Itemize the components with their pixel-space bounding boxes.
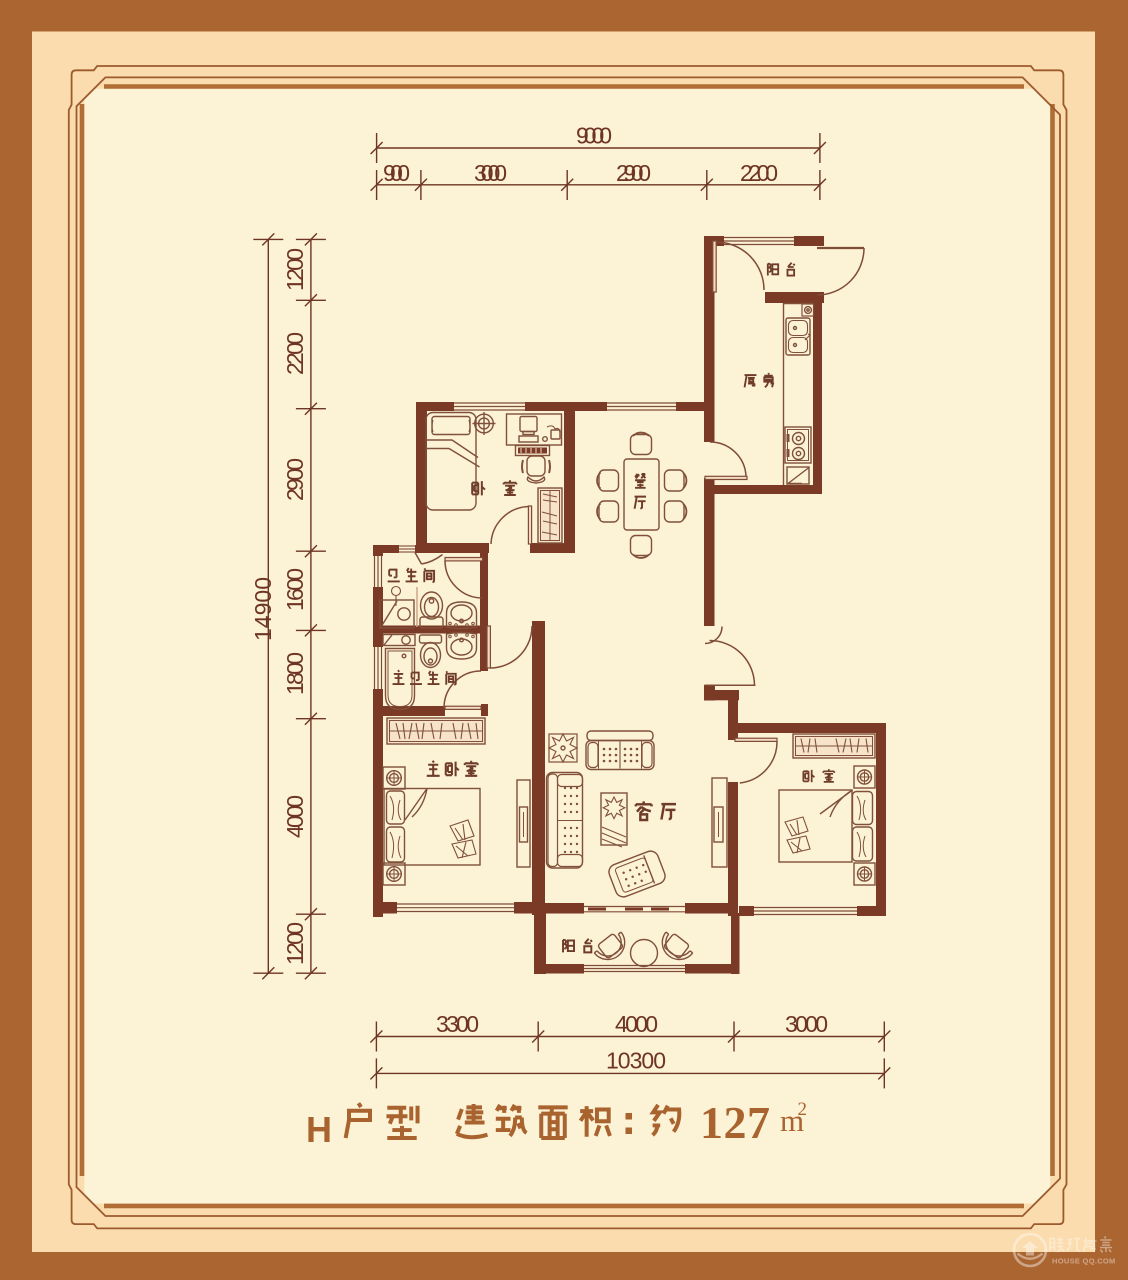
svg-text:HOUSE QQ.COM: HOUSE QQ.COM bbox=[1052, 1257, 1116, 1266]
svg-text:2900: 2900 bbox=[282, 458, 308, 501]
svg-text:10300: 10300 bbox=[606, 1048, 666, 1074]
svg-text:4000: 4000 bbox=[615, 1011, 658, 1037]
svg-text:900: 900 bbox=[383, 160, 410, 186]
svg-text:2900: 2900 bbox=[616, 160, 651, 186]
svg-text:9000: 9000 bbox=[576, 123, 612, 149]
svg-text:1600: 1600 bbox=[282, 568, 308, 611]
svg-text:1200: 1200 bbox=[282, 248, 308, 291]
svg-text:H: H bbox=[306, 1109, 332, 1150]
svg-text:2200: 2200 bbox=[740, 160, 778, 186]
svg-text:1200: 1200 bbox=[282, 922, 308, 965]
svg-text:14900: 14900 bbox=[250, 577, 276, 641]
svg-text:127: 127 bbox=[700, 1097, 770, 1148]
svg-text:3000: 3000 bbox=[474, 160, 507, 186]
svg-text:2200: 2200 bbox=[282, 332, 308, 375]
svg-text:3000: 3000 bbox=[785, 1011, 828, 1037]
svg-text:2: 2 bbox=[798, 1099, 808, 1120]
svg-text:3300: 3300 bbox=[436, 1011, 479, 1037]
svg-text:4000: 4000 bbox=[282, 795, 308, 838]
svg-text:1800: 1800 bbox=[282, 652, 308, 695]
